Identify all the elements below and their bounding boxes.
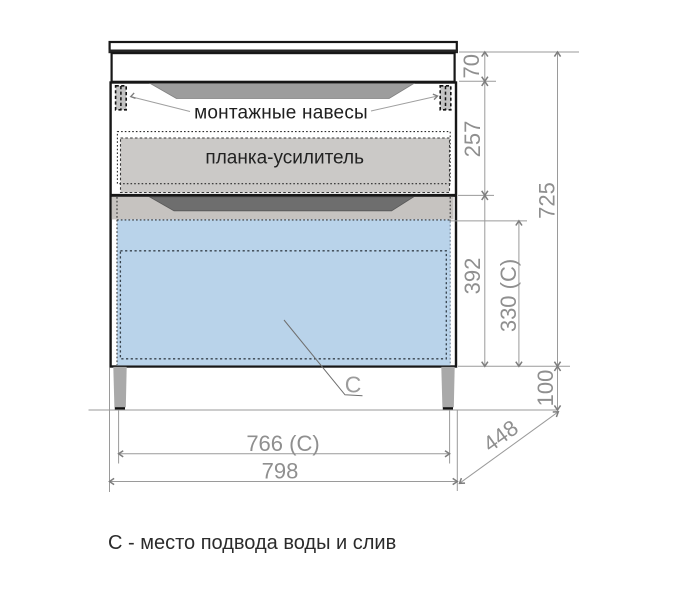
svg-text:725: 725 (535, 182, 560, 219)
svg-text:330 (C): 330 (C) (496, 259, 521, 332)
svg-text:766 (C): 766 (C) (246, 431, 319, 456)
svg-text:монтажные навесы: монтажные навесы (194, 103, 368, 124)
svg-text:392: 392 (460, 258, 485, 295)
svg-text:С - место подвода воды и слив: С - место подвода воды и слив (108, 532, 396, 554)
svg-text:100: 100 (533, 370, 558, 407)
svg-text:257: 257 (460, 121, 485, 158)
svg-text:70: 70 (459, 54, 484, 78)
svg-text:798: 798 (262, 459, 299, 484)
svg-text:C: C (345, 372, 362, 398)
svg-text:планка-усилитель: планка-усилитель (205, 148, 364, 169)
